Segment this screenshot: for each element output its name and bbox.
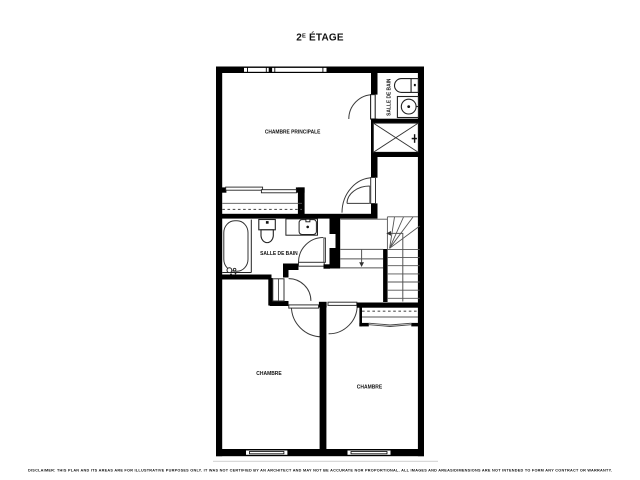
svg-text:2E ÉTAGE: 2E ÉTAGE	[296, 31, 344, 44]
svg-text:CHAMBRE: CHAMBRE	[357, 385, 383, 391]
svg-text:SALLE DE BAIN: SALLE DE BAIN	[386, 79, 392, 116]
svg-text:SALLE DE BAIN: SALLE DE BAIN	[260, 251, 298, 257]
svg-text:DISCLAIMER: THIS PLAN AND ITS: DISCLAIMER: THIS PLAN AND ITS AREAS ARE …	[28, 469, 612, 473]
svg-text:CHAMBRE: CHAMBRE	[256, 371, 282, 377]
svg-text:CHAMBRE PRINCIPALE: CHAMBRE PRINCIPALE	[265, 130, 321, 136]
